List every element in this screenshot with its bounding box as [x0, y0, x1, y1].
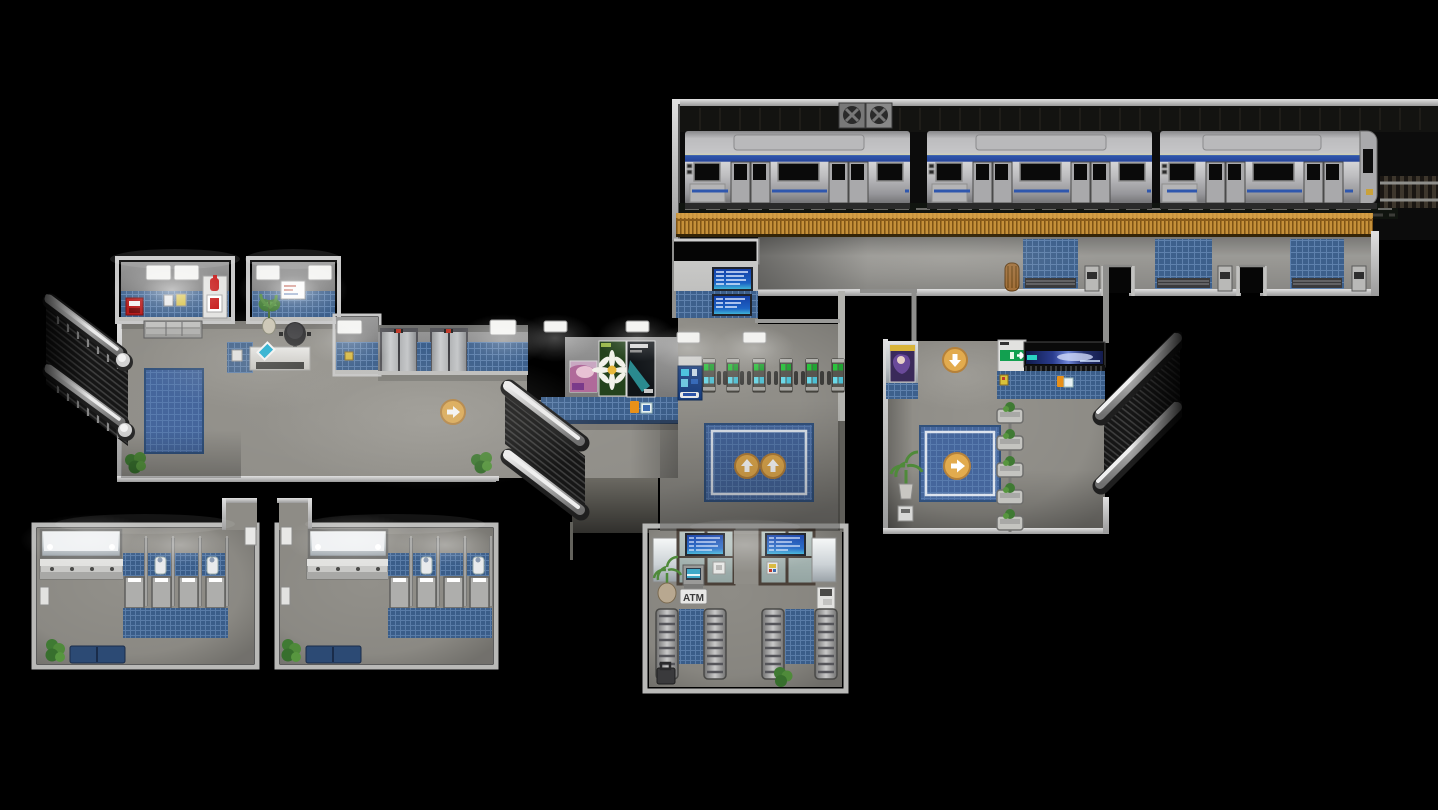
svg-text:ATM: ATM — [683, 593, 704, 604]
